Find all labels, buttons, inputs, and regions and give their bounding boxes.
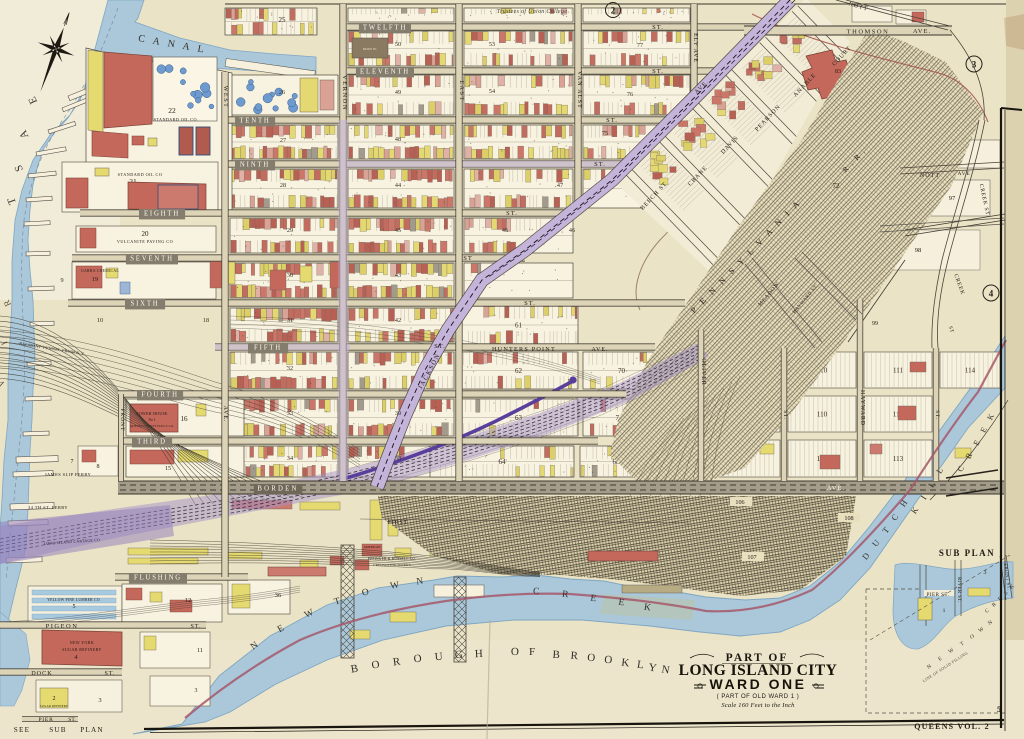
svg-text:PIER ST.: PIER ST. [927,593,950,598]
svg-text:BORDEN: BORDEN [257,486,298,493]
svg-text:ST.: ST. [104,671,115,677]
svg-text:STANDARD OIL CO.: STANDARD OIL CO. [154,117,199,122]
svg-text:16: 16 [181,415,189,423]
svg-text:7: 7 [71,459,74,465]
svg-text:76: 76 [627,91,633,98]
svg-text:ST.: ST. [506,210,518,217]
svg-text:QUEENS VOL. 2: QUEENS VOL. 2 [914,722,990,731]
svg-text:HUNTERS POINT: HUNTERS POINT [492,346,556,353]
svg-text:OLIVER: OLIVER [700,358,706,385]
svg-text:22: 22 [168,106,176,115]
svg-text:POWER HOUSE: POWER HOUSE [136,411,168,416]
svg-text:ST.: ST. [782,410,788,420]
svg-text:54: 54 [489,88,495,95]
svg-text:VERNON: VERNON [341,75,348,111]
svg-text:108: 108 [844,515,853,522]
svg-text:EAST: EAST [458,80,465,101]
svg-text:Scale 160 Feet to the Inch: Scale 160 Feet to the Inch [721,702,794,709]
svg-text:AVE.: AVE. [591,347,608,353]
svg-text:YELLOW PINE LUMBER CO.: YELLOW PINE LUMBER CO. [47,598,101,602]
svg-text:34: 34 [287,455,293,462]
svg-text:FLUSHING: FLUSHING [134,575,182,582]
svg-text:99: 99 [872,321,878,327]
svg-text:IRON W.: IRON W. [363,47,377,51]
svg-text:32: 32 [287,365,293,372]
svg-text:TWELFTH: TWELFTH [363,25,407,32]
svg-text:N: N [416,577,424,588]
svg-text:ELY AVE: ELY AVE [692,33,698,63]
svg-text:PIGEON: PIGEON [46,623,79,630]
svg-text:( PART OF OLD WARD 1 ): ( PART OF OLD WARD 1 ) [717,694,799,700]
svg-text:FIRST: FIRST [388,520,409,526]
svg-text:19: 19 [92,276,99,283]
svg-text:U: U [434,651,443,664]
svg-text:2: 2 [611,6,616,16]
svg-text:SUGAR REFINERY: SUGAR REFINERY [62,647,102,652]
svg-text:VAN ALST: VAN ALST [576,71,582,109]
svg-text:DOCK: DOCK [31,670,53,677]
svg-text:98: 98 [915,247,922,254]
svg-text:ST: ST [463,255,473,262]
svg-text:Trustees of Union College: Trustees of Union College [497,8,567,15]
svg-text:107: 107 [747,554,756,561]
svg-text:AVE.: AVE. [913,28,931,35]
svg-text:FOURTH: FOURTH [141,392,179,399]
svg-text:VULCANITE PAVING CO: VULCANITE PAVING CO [117,239,173,244]
svg-text:SUGAR REFINERY: SUGAR REFINERY [40,704,69,708]
svg-text:11: 11 [197,648,203,654]
svg-text:AVE.: AVE. [222,406,228,423]
svg-text:77: 77 [637,42,643,49]
svg-text:75: 75 [602,130,608,137]
svg-text:K: K [621,657,630,670]
svg-text:18: 18 [203,317,209,324]
svg-text:61: 61 [515,322,523,330]
svg-text:ST.: ST. [606,117,618,124]
svg-text:33: 33 [287,410,293,417]
svg-text:RIVER ST.: RIVER ST. [956,577,961,603]
svg-text:2: 2 [53,696,56,702]
svg-text:46: 46 [569,227,575,234]
svg-text:4: 4 [989,289,994,299]
svg-text:47: 47 [557,182,563,189]
svg-text:ST.: ST. [190,624,201,630]
svg-text:ST.: ST. [934,410,940,420]
svg-text:15: 15 [165,466,171,472]
svg-text:42: 42 [395,317,401,324]
svg-text:G: G [454,649,463,662]
svg-text:45: 45 [395,227,401,234]
svg-text:F: F [529,646,535,658]
svg-text:3: 3 [98,697,101,704]
svg-text:EIGHTH: EIGHTH [144,211,180,218]
svg-text:JAMES SLIP FERRY: JAMES SLIP FERRY [45,472,92,477]
svg-text:O: O [604,654,613,667]
svg-text:31: 31 [287,317,293,324]
svg-text:10: 10 [97,317,103,324]
svg-text:26: 26 [279,89,285,96]
svg-text:O: O [511,646,519,658]
svg-text:29: 29 [287,227,293,234]
svg-text:8: 8 [97,464,100,470]
svg-text:SUB PLAN: SUB PLAN [939,548,995,558]
svg-text:5: 5 [73,604,76,610]
svg-text:PLAN: PLAN [80,726,104,734]
svg-text:44: 44 [395,182,401,189]
svg-text:W: W [389,580,399,591]
svg-text:NEW YORK: NEW YORK [70,640,94,645]
svg-text:ST.: ST. [68,717,76,723]
svg-text:27: 27 [280,137,286,144]
svg-text:THOMSON: THOMSON [847,29,890,36]
svg-text:SEVENTH: SEVENTH [130,256,174,263]
svg-text:1: 1 [943,608,946,614]
svg-text:64: 64 [499,458,507,466]
svg-text:AMERICAN: AMERICAN [363,545,381,549]
svg-text:ST.: ST. [652,24,664,31]
svg-text:62: 62 [515,367,523,375]
svg-text:ST.: ST. [434,343,446,350]
svg-text:38: 38 [395,455,401,462]
svg-text:H: H [475,648,484,660]
svg-text:No 1: No 1 [148,418,155,422]
svg-text:ST.: ST. [524,300,536,307]
svg-text:NINTH: NINTH [240,162,270,169]
svg-text:49: 49 [395,89,401,96]
svg-text:83: 83 [835,69,841,75]
svg-text:48: 48 [395,136,401,143]
svg-text:34 TH ST. FERRY: 34 TH ST. FERRY [28,505,68,510]
svg-text:WARD ONE: WARD ONE [710,676,807,692]
svg-text:AVE.: AVE. [827,485,845,492]
svg-text:ST.: ST. [594,161,606,168]
svg-text:WEST: WEST [222,86,229,109]
svg-text:28: 28 [280,182,286,189]
svg-text:43: 43 [395,272,401,279]
svg-text:46: 46 [502,227,508,234]
svg-text:30: 30 [287,272,293,279]
svg-text:ST.: ST. [652,68,664,75]
svg-text:B: B [552,649,560,661]
svg-text:C: C [533,587,540,597]
svg-text:114: 114 [965,367,976,375]
svg-text:GARRA CHEMICAL: GARRA CHEMICAL [81,269,119,273]
svg-text:STANDARD OIL CO: STANDARD OIL CO [118,172,163,177]
svg-text:AVE: AVE [958,171,971,177]
svg-text:HAYWARD: HAYWARD [859,390,865,426]
svg-text:20: 20 [142,230,150,238]
svg-text:FIFTH: FIFTH [254,345,282,352]
svg-text:THIRD: THIRD [137,439,167,446]
svg-text:113: 113 [893,455,904,463]
svg-text:TENTH: TENTH [239,118,270,125]
svg-text:70: 70 [618,367,626,375]
svg-text:ELEVENTH: ELEVENTH [360,69,410,76]
svg-text:3: 3 [195,688,198,694]
svg-text:PIER: PIER [38,717,53,723]
svg-text:50: 50 [395,41,401,48]
svg-text:NOTT: NOTT [920,173,940,179]
svg-text:O: O [413,653,422,666]
svg-text:72: 72 [833,182,841,190]
svg-text:39: 39 [395,410,401,417]
svg-text:3: 3 [972,60,977,70]
svg-text:SIXTH: SIXTH [130,301,159,308]
svg-text:25: 25 [279,16,287,24]
svg-text:53: 53 [489,41,495,48]
svg-text:106: 106 [735,499,744,506]
svg-text:SEE: SEE [14,726,30,734]
svg-text:FRONT: FRONT [119,408,125,431]
svg-text:O: O [587,652,596,665]
svg-text:97: 97 [949,195,956,202]
svg-text:9: 9 [60,277,63,284]
svg-text:SUB: SUB [49,726,67,734]
svg-text:111: 111 [893,367,903,375]
svg-text:110: 110 [817,411,828,419]
